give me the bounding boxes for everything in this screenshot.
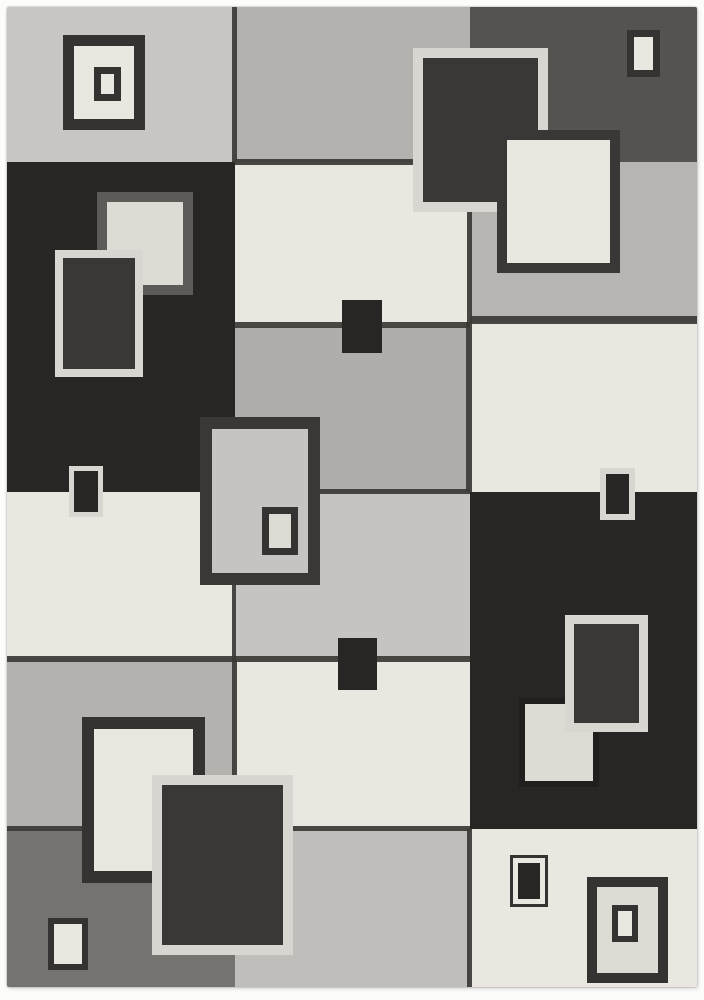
seam-v-right-row3 [466,322,472,492]
ornament-left-edge-small [69,466,103,517]
ornament-topleft-inner [94,67,121,101]
photo-canvas [0,0,704,1000]
ornament-center-frame [200,417,320,585]
ornament-topright-small-rect [627,30,660,77]
ornament-bottomleft-light-frame [152,775,293,955]
ornament-left-light-frame [55,250,143,377]
ornament-center-frame-inner [262,507,298,555]
seam-h-right-row2 [470,316,697,324]
seam-v-top-left [232,7,237,162]
ornament-bottomleft-small-rect [48,918,88,970]
ornament-bottomright-frame-inner [612,905,638,942]
ornament-right-edge-small [600,468,635,520]
seam-h-left-row4 [7,656,235,662]
ornament-topright-cream-square [497,130,620,273]
seam-v-right-row6 [467,829,472,987]
ornament-center-dark-square-bottom [338,638,377,690]
ornament-bottomright-outline-core [518,863,540,899]
rug-image [7,7,697,987]
ornament-center-dark-square-top [342,300,382,353]
ornament-right-light-frame [565,615,648,732]
block-right-cream-row3 [470,322,697,492]
